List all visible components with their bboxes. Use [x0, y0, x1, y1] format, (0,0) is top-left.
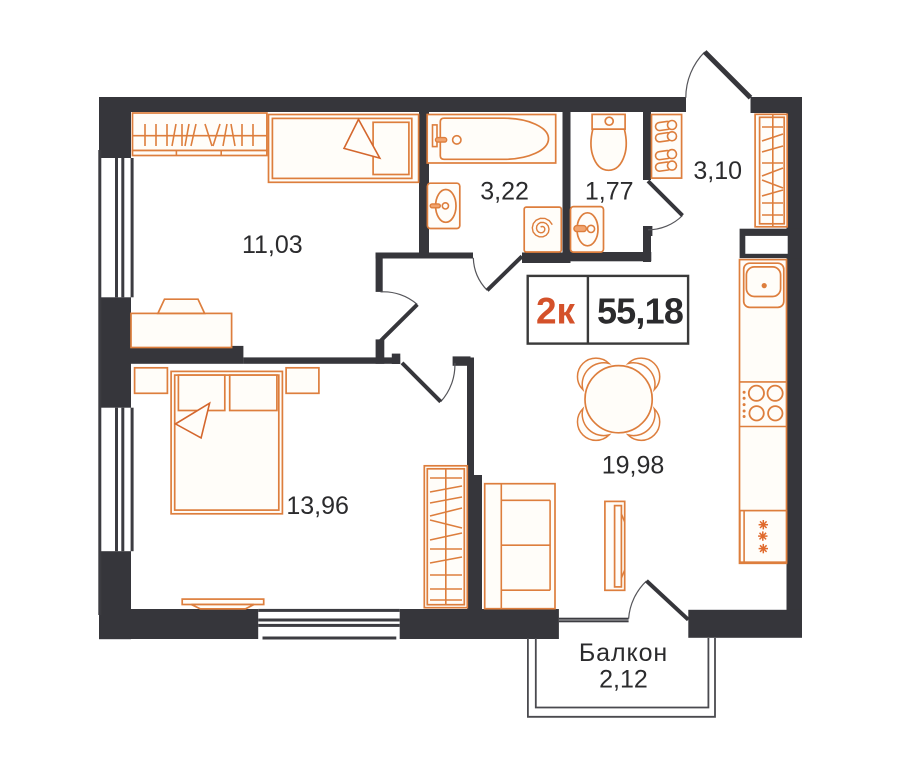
svg-text:3,10: 3,10 — [693, 157, 742, 185]
svg-text:13,96: 13,96 — [286, 492, 349, 520]
svg-text:3,22: 3,22 — [480, 177, 529, 205]
svg-text:Балкон: Балкон — [579, 639, 668, 667]
svg-text:19,98: 19,98 — [602, 452, 665, 480]
svg-text:11,03: 11,03 — [242, 231, 303, 259]
svg-text:55,18: 55,18 — [597, 291, 683, 332]
svg-text:2к: 2к — [536, 291, 576, 332]
svg-text:2,12: 2,12 — [599, 666, 648, 694]
svg-text:1,77: 1,77 — [585, 178, 634, 206]
